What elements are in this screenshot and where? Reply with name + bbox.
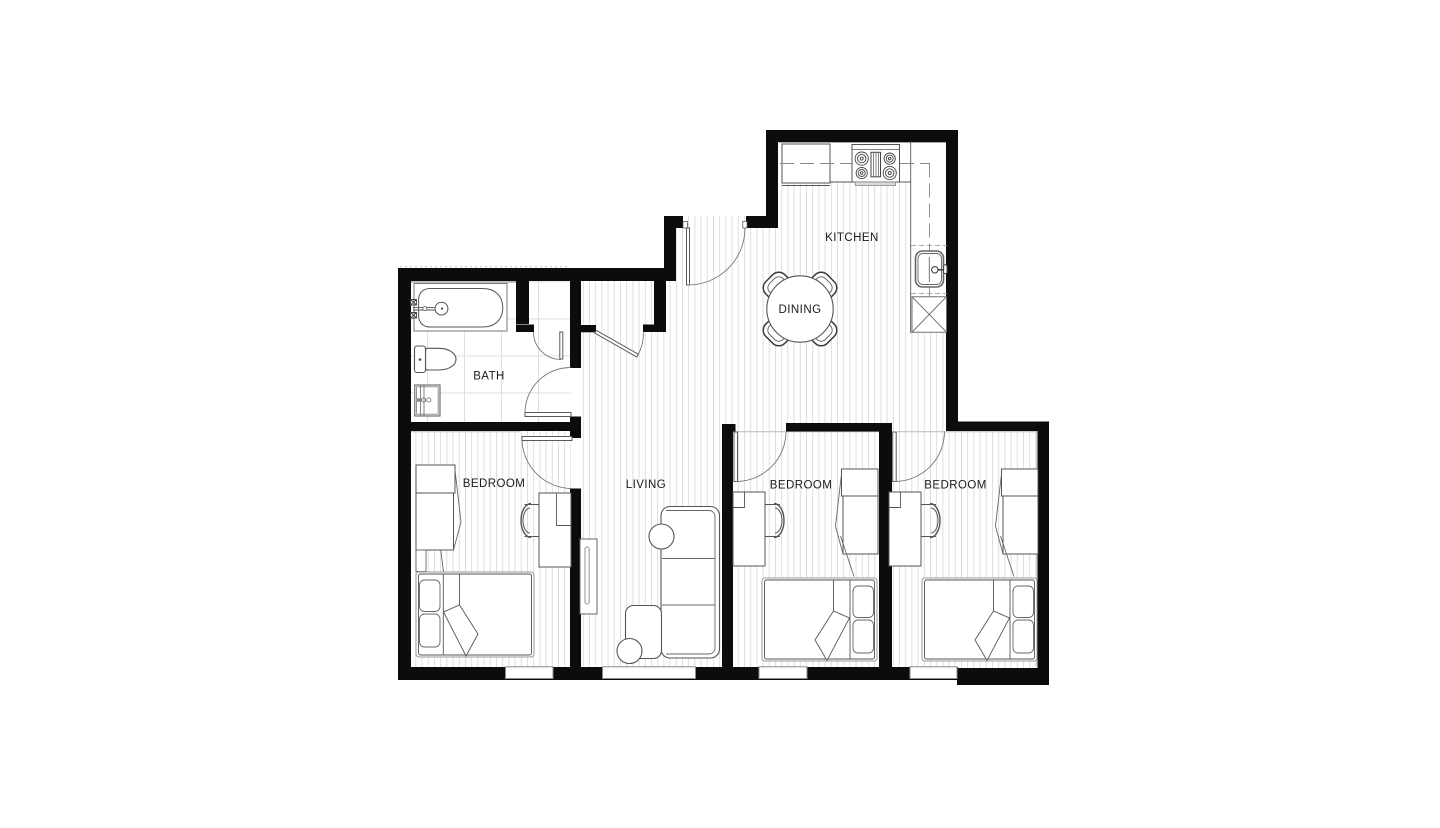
svg-text:BATH: BATH [473, 371, 505, 383]
svg-text:DINING: DINING [779, 304, 822, 316]
svg-text:BEDROOM: BEDROOM [463, 478, 526, 490]
svg-text:KITCHEN: KITCHEN [825, 232, 879, 244]
svg-text:LIVING: LIVING [626, 479, 666, 491]
svg-text:BEDROOM: BEDROOM [770, 480, 833, 492]
svg-text:BEDROOM: BEDROOM [924, 480, 987, 492]
